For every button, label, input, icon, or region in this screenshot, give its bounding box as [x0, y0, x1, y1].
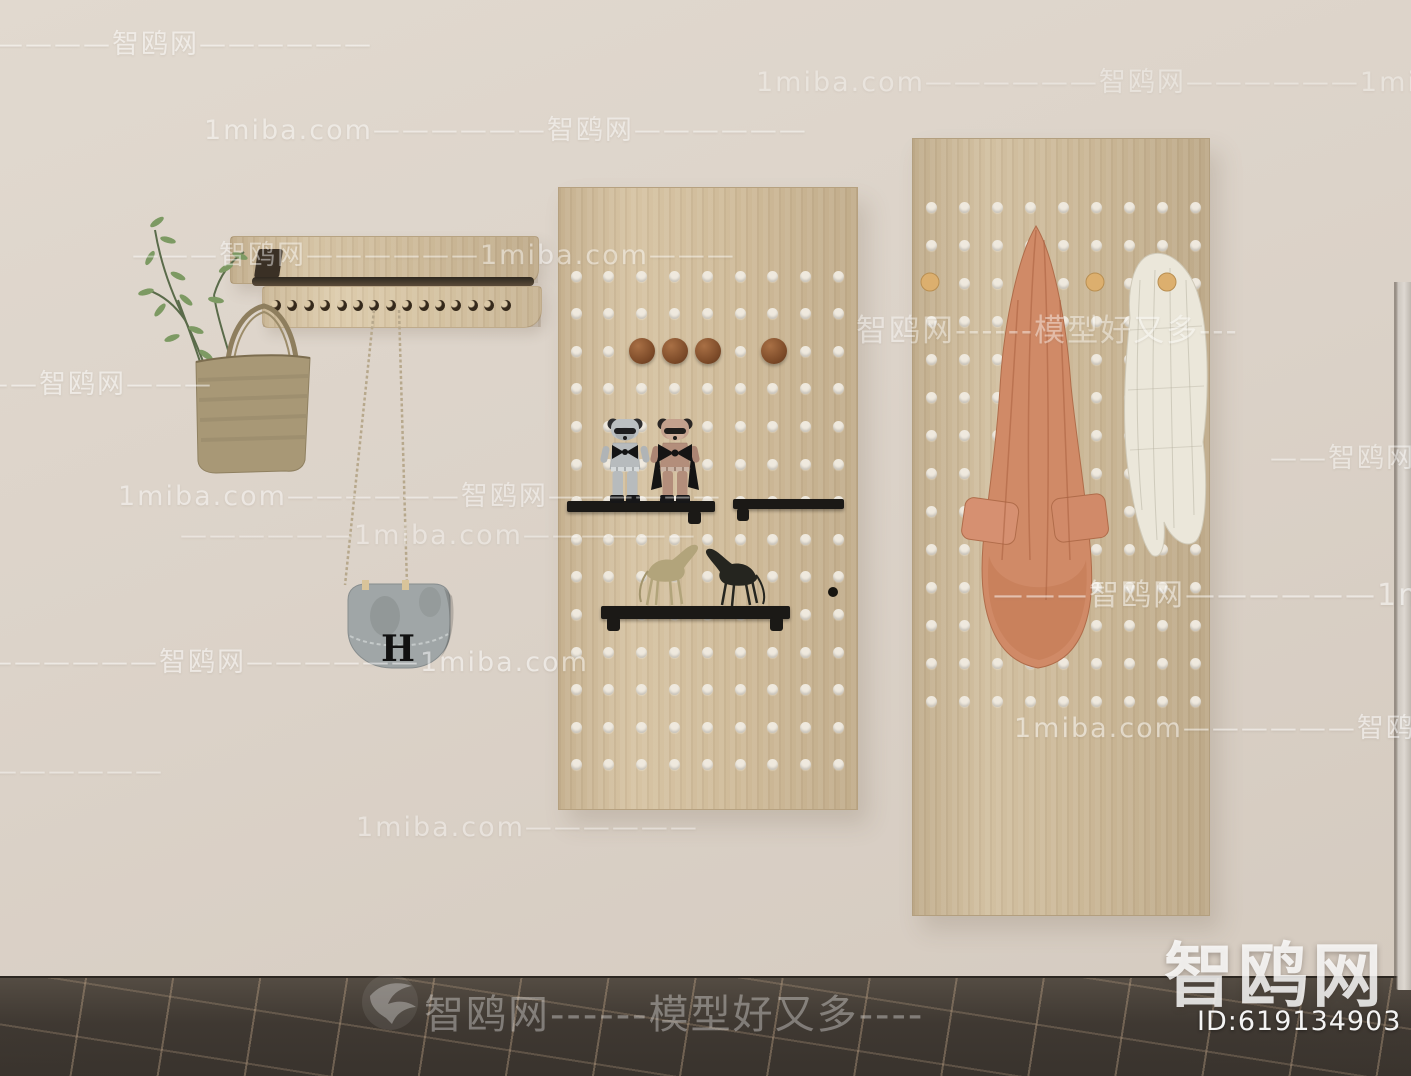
- pegboard-hole: [571, 722, 582, 733]
- pegboard-hole: [1058, 582, 1069, 593]
- pegboard-hole: [1190, 658, 1201, 669]
- pegboard-hole: [1091, 468, 1102, 479]
- pegboard-hole: [992, 430, 1003, 441]
- pegboard-hole: [636, 421, 647, 432]
- pegboard-hole: [992, 392, 1003, 403]
- pegboard-hole: [1190, 202, 1201, 213]
- rail-hook: [271, 300, 281, 311]
- rail-hook: [435, 300, 445, 311]
- rail-hook: [304, 300, 314, 311]
- pegboard-hole: [992, 582, 1003, 593]
- pegboard-hole: [992, 620, 1003, 631]
- pegboard-hole: [669, 271, 680, 282]
- pegboard-hole: [636, 383, 647, 394]
- pegboard-hole: [1157, 544, 1168, 555]
- wood-knob: [662, 338, 688, 364]
- pegboard-hole: [959, 468, 970, 479]
- pegboard-hole: [959, 620, 970, 631]
- pegboard-hole: [926, 620, 937, 631]
- pegboard-hole: [767, 759, 778, 770]
- pegboard-hole: [959, 696, 970, 707]
- pegboard-hole: [1124, 658, 1135, 669]
- pegboard-hole: [767, 459, 778, 470]
- pegboard-hole: [959, 316, 970, 327]
- pegboard-hole: [959, 278, 970, 289]
- pegboard-hole: [1058, 544, 1069, 555]
- pegboard-hole: [571, 308, 582, 319]
- pegboard-hole: [1091, 544, 1102, 555]
- pegboard-hole: [735, 647, 746, 658]
- pegboard-hole: [571, 534, 582, 545]
- pegboard-hole: [992, 354, 1003, 365]
- pegboard-hole: [767, 308, 778, 319]
- pegboard-hole: [603, 421, 614, 432]
- pegboard-hole: [1058, 506, 1069, 517]
- pegboard-hole: [1190, 240, 1201, 251]
- pegboard-hole: [1124, 620, 1135, 631]
- pegboard-hole: [833, 421, 844, 432]
- pegboard-hole: [926, 544, 937, 555]
- pegboard-hole: [992, 544, 1003, 555]
- pegboard-hole: [767, 383, 778, 394]
- pegboard-hole: [833, 759, 844, 770]
- shelf-peg: [688, 511, 701, 524]
- pegboard-hole: [1190, 544, 1201, 555]
- pegboard-hole: [800, 459, 811, 470]
- pegboard-hole: [1058, 392, 1069, 403]
- pegboard-hole: [603, 383, 614, 394]
- pegboard-hole: [926, 316, 937, 327]
- pegboard-hole: [959, 658, 970, 669]
- pegboard-hole: [800, 421, 811, 432]
- pegboard-hole: [959, 506, 970, 517]
- pegboard-hole: [603, 308, 614, 319]
- pegboard-hole: [1190, 278, 1201, 289]
- pegboard-hole: [1124, 582, 1135, 593]
- pegboard-hole: [800, 346, 811, 357]
- pegboard-hole: [702, 534, 713, 545]
- pegboard-hole: [735, 346, 746, 357]
- pegboard-hole: [735, 759, 746, 770]
- pegboard-hole: [1190, 506, 1201, 517]
- pegboard-hole: [926, 582, 937, 593]
- pegboard-hole: [1190, 696, 1201, 707]
- pegboard-hole: [992, 240, 1003, 251]
- pegboard-hole: [571, 346, 582, 357]
- pegboard-hole: [926, 202, 937, 213]
- display-shelf: [601, 606, 790, 619]
- pegboard-hole: [603, 346, 614, 357]
- pegboard-hole: [833, 647, 844, 658]
- pegboard-hole: [702, 759, 713, 770]
- pegboard-hole: [1124, 278, 1135, 289]
- pegboard-hole: [603, 271, 614, 282]
- pegboard-hole: [571, 383, 582, 394]
- pegboard-hole: [1091, 430, 1102, 441]
- pegboard-hole: [669, 759, 680, 770]
- pegboard-hole: [571, 571, 582, 582]
- pegboard-hole: [1157, 392, 1168, 403]
- pegboard-hole: [800, 647, 811, 658]
- pegboard-hole: [992, 658, 1003, 669]
- pegboard-hole: [1157, 278, 1168, 289]
- pegboard-hole: [603, 647, 614, 658]
- pegboard-hole: [800, 759, 811, 770]
- pegboard-hole: [1025, 468, 1036, 479]
- pegboard-hole: [1025, 582, 1036, 593]
- coat-rack-slot: [254, 249, 283, 278]
- pegboard-hole: [1190, 430, 1201, 441]
- pegboard-hole: [1025, 506, 1036, 517]
- pegboard-hole: [1091, 202, 1102, 213]
- pegboard-hole: [1025, 544, 1036, 555]
- pegboard-hole: [636, 459, 647, 470]
- pegboard-hole: [1124, 468, 1135, 479]
- pegboard-hole: [571, 759, 582, 770]
- coat-rack-groove: [252, 277, 534, 286]
- pegboard-hole: [767, 534, 778, 545]
- pegboard-hole: [926, 658, 937, 669]
- pegboard-hole: [702, 684, 713, 695]
- pegboard-hole: [1025, 354, 1036, 365]
- pegboard-hole: [702, 459, 713, 470]
- pegboard-hole: [1157, 240, 1168, 251]
- pegboard-hole: [1025, 202, 1036, 213]
- pegboard-hole: [1091, 506, 1102, 517]
- pegboard-hole: [992, 202, 1003, 213]
- shelf-peg: [770, 617, 783, 631]
- pegboard-hole: [1025, 392, 1036, 403]
- pegboard-hole: [767, 421, 778, 432]
- black-peg: [828, 587, 838, 597]
- brand-bird-icon: [360, 972, 422, 1032]
- pegboard-hole: [1058, 316, 1069, 327]
- pegboard-hole: [571, 421, 582, 432]
- pegboard-hole: [669, 534, 680, 545]
- pegboard-hole: [669, 647, 680, 658]
- pegboard-hole: [1025, 658, 1036, 669]
- pegboard-hole: [1058, 620, 1069, 631]
- pegboard-hole: [1025, 316, 1036, 327]
- pegboard-hole: [800, 684, 811, 695]
- pegboard-hole: [669, 308, 680, 319]
- scene: H: [0, 0, 1411, 1076]
- pegboard-hole: [926, 430, 937, 441]
- pegboard-hole: [1157, 658, 1168, 669]
- pegboard-hole: [959, 202, 970, 213]
- pegboard-hole: [1157, 506, 1168, 517]
- wood-knob: [629, 338, 655, 364]
- pegboard-hole: [1157, 202, 1168, 213]
- pegboard-hole: [1025, 696, 1036, 707]
- pegboard-hole: [833, 609, 844, 620]
- pegboard-hole: [1091, 240, 1102, 251]
- pegboard-hole: [735, 459, 746, 470]
- pegboard-hole: [1091, 316, 1102, 327]
- pegboard-hole: [735, 571, 746, 582]
- pegboard-hole: [1124, 392, 1135, 403]
- pegboard-hole: [1157, 354, 1168, 365]
- pegboard-hole: [1124, 430, 1135, 441]
- rail-hook: [468, 300, 478, 311]
- pegboard-hole: [702, 722, 713, 733]
- pegboard-hole: [1190, 582, 1201, 593]
- pegboard-hole: [603, 459, 614, 470]
- pegboard-hole: [992, 316, 1003, 327]
- wall-column: [1394, 282, 1411, 990]
- pegboard-hole: [669, 383, 680, 394]
- pegboard-hole: [735, 308, 746, 319]
- pegboard-hole: [571, 609, 582, 620]
- pegboard-hole: [702, 647, 713, 658]
- brand-watermark-line: 智鸥网------模型好又多----: [424, 982, 924, 1040]
- pegboard-hole: [1058, 278, 1069, 289]
- wood-knob: [695, 338, 721, 364]
- pegboard-hole: [571, 684, 582, 695]
- pegboard-hole: [603, 759, 614, 770]
- pegboard-hole: [992, 468, 1003, 479]
- pegboard-hole: [1091, 658, 1102, 669]
- pegboard-hole: [1190, 316, 1201, 327]
- pegboard-hole: [1157, 620, 1168, 631]
- rail-hook: [337, 300, 347, 311]
- pegboard-hole: [926, 354, 937, 365]
- rail-hook: [353, 300, 363, 311]
- pegboard-hole: [1058, 354, 1069, 365]
- pegboard-hole: [669, 722, 680, 733]
- pegboard-hole: [1058, 202, 1069, 213]
- pegboard-hole: [1025, 620, 1036, 631]
- pegboard-hole: [1091, 696, 1102, 707]
- pegboard-hole: [1091, 278, 1102, 289]
- pegboard-hole: [571, 271, 582, 282]
- pegboard-hole: [702, 571, 713, 582]
- pegboard-hole: [833, 459, 844, 470]
- pegboard-hole: [1124, 316, 1135, 327]
- pegboard-hole: [571, 459, 582, 470]
- pegboard-hole: [992, 696, 1003, 707]
- pegboard-hole: [800, 609, 811, 620]
- rail-hook: [501, 300, 511, 311]
- pegboard-hole: [1124, 506, 1135, 517]
- pegboard-hole: [735, 383, 746, 394]
- pegboard-hole: [833, 271, 844, 282]
- pegboard-hole: [702, 271, 713, 282]
- pegboard-hole: [735, 534, 746, 545]
- pegboard-hole: [959, 240, 970, 251]
- pegboard-hole: [800, 383, 811, 394]
- pegboard-hole: [959, 354, 970, 365]
- pegboard-hole: [1058, 240, 1069, 251]
- pegboard-hole: [1091, 392, 1102, 403]
- pegboard-hole: [636, 759, 647, 770]
- pegboard-hole: [833, 383, 844, 394]
- pegboard-hole: [926, 240, 937, 251]
- pegboard-hole: [1091, 582, 1102, 593]
- pegboard-hole: [603, 684, 614, 695]
- pegboard-hole: [767, 571, 778, 582]
- pegboard-hole: [1190, 354, 1201, 365]
- pegboard-hole: [735, 271, 746, 282]
- pegboard-hole: [1157, 696, 1168, 707]
- pegboard-hole: [959, 430, 970, 441]
- wood-knob: [761, 338, 787, 364]
- pegboard-hole: [636, 647, 647, 658]
- pegboard-hole: [833, 722, 844, 733]
- pegboard-hole: [1124, 696, 1135, 707]
- pegboard-hole: [669, 421, 680, 432]
- pegboard-hole: [571, 647, 582, 658]
- pegboard-hole: [1058, 430, 1069, 441]
- pegboard-hole: [926, 696, 937, 707]
- pegboard-hole: [636, 684, 647, 695]
- rail-hook: [419, 300, 429, 311]
- pegboard-hole: [1190, 392, 1201, 403]
- pegboard-hole: [1025, 278, 1036, 289]
- pegboard-hole: [767, 271, 778, 282]
- pegboard-hole: [1157, 430, 1168, 441]
- pegboard-hole: [1091, 620, 1102, 631]
- pegboard-hole: [767, 684, 778, 695]
- pegboard-hole: [1124, 544, 1135, 555]
- shelf-peg: [607, 617, 620, 631]
- pegboard-hole: [702, 308, 713, 319]
- pegboard-hole: [1190, 620, 1201, 631]
- pegboard-hole: [1190, 468, 1201, 479]
- pegboard-hole: [735, 722, 746, 733]
- pegboard-hole: [800, 722, 811, 733]
- pegboard-hole: [1124, 202, 1135, 213]
- pegboard-hole: [926, 278, 937, 289]
- pegboard-hole: [833, 346, 844, 357]
- pegboard-hole: [833, 684, 844, 695]
- pegboard-hole: [702, 421, 713, 432]
- pegboard-hole: [926, 506, 937, 517]
- pegboard-hole: [767, 647, 778, 658]
- pegboard-hole: [959, 392, 970, 403]
- pegboard-hole: [1157, 468, 1168, 479]
- shelf-peg: [737, 508, 749, 521]
- pegboard-hole: [735, 421, 746, 432]
- pegboard-hole: [992, 278, 1003, 289]
- pegboard-right: [912, 138, 1210, 916]
- pegboard-hole: [959, 544, 970, 555]
- pegboard-hole: [669, 459, 680, 470]
- pegboard-hole: [992, 506, 1003, 517]
- pegboard-hole: [1025, 240, 1036, 251]
- pegboard-hole: [767, 722, 778, 733]
- display-shelf: [733, 499, 844, 509]
- pegboard-hole: [636, 571, 647, 582]
- pegboard-hole: [959, 582, 970, 593]
- pegboard-hole: [833, 308, 844, 319]
- pegboard-hole: [800, 308, 811, 319]
- pegboard-hole: [603, 534, 614, 545]
- pegboard-hole: [1124, 354, 1135, 365]
- pegboard-hole: [926, 468, 937, 479]
- pegboard-hole: [1091, 354, 1102, 365]
- pegboard-hole: [833, 571, 844, 582]
- pegboard-hole: [833, 534, 844, 545]
- pegboard-hole: [1124, 240, 1135, 251]
- model-id-label: ID:619134903: [1197, 1006, 1401, 1037]
- pegboard-hole: [702, 383, 713, 394]
- pegboard-hole: [800, 571, 811, 582]
- pegboard-hole: [926, 392, 937, 403]
- pegboard-hole: [636, 534, 647, 545]
- pegboard-hole: [1157, 316, 1168, 327]
- pegboard-hole: [1058, 468, 1069, 479]
- pegboard-hole: [735, 684, 746, 695]
- pegboard-hole: [636, 722, 647, 733]
- pegboard-hole: [1058, 696, 1069, 707]
- rail-hook: [386, 300, 396, 311]
- pegboard-hole: [800, 271, 811, 282]
- pegboard-hole: [669, 571, 680, 582]
- pegboard-hole: [636, 271, 647, 282]
- pegboard-hole: [1058, 658, 1069, 669]
- pegboard-hole: [603, 571, 614, 582]
- pegboard-hole: [1157, 582, 1168, 593]
- pegboard-hole: [669, 684, 680, 695]
- pegboard-hole: [636, 308, 647, 319]
- pegboard-hole: [800, 534, 811, 545]
- pegboard-hole: [603, 722, 614, 733]
- pegboard-hole: [1025, 430, 1036, 441]
